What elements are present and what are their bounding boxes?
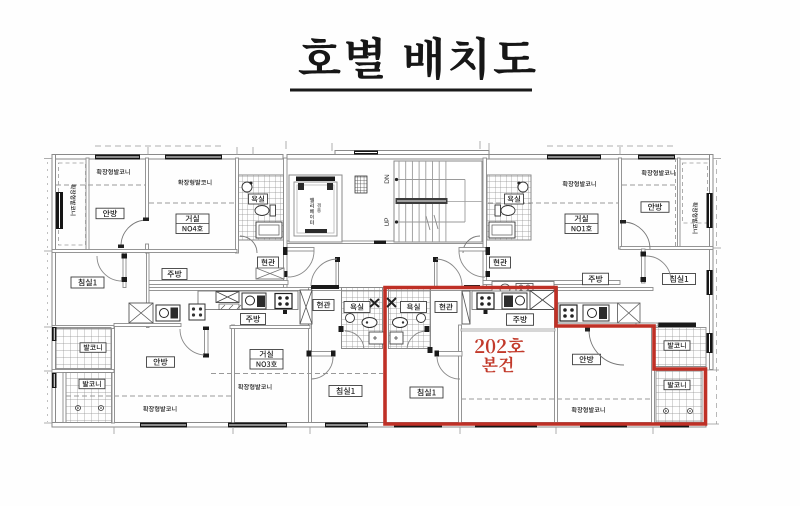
svg-text:DN: DN xyxy=(384,174,391,184)
svg-text:UP: UP xyxy=(384,217,391,226)
